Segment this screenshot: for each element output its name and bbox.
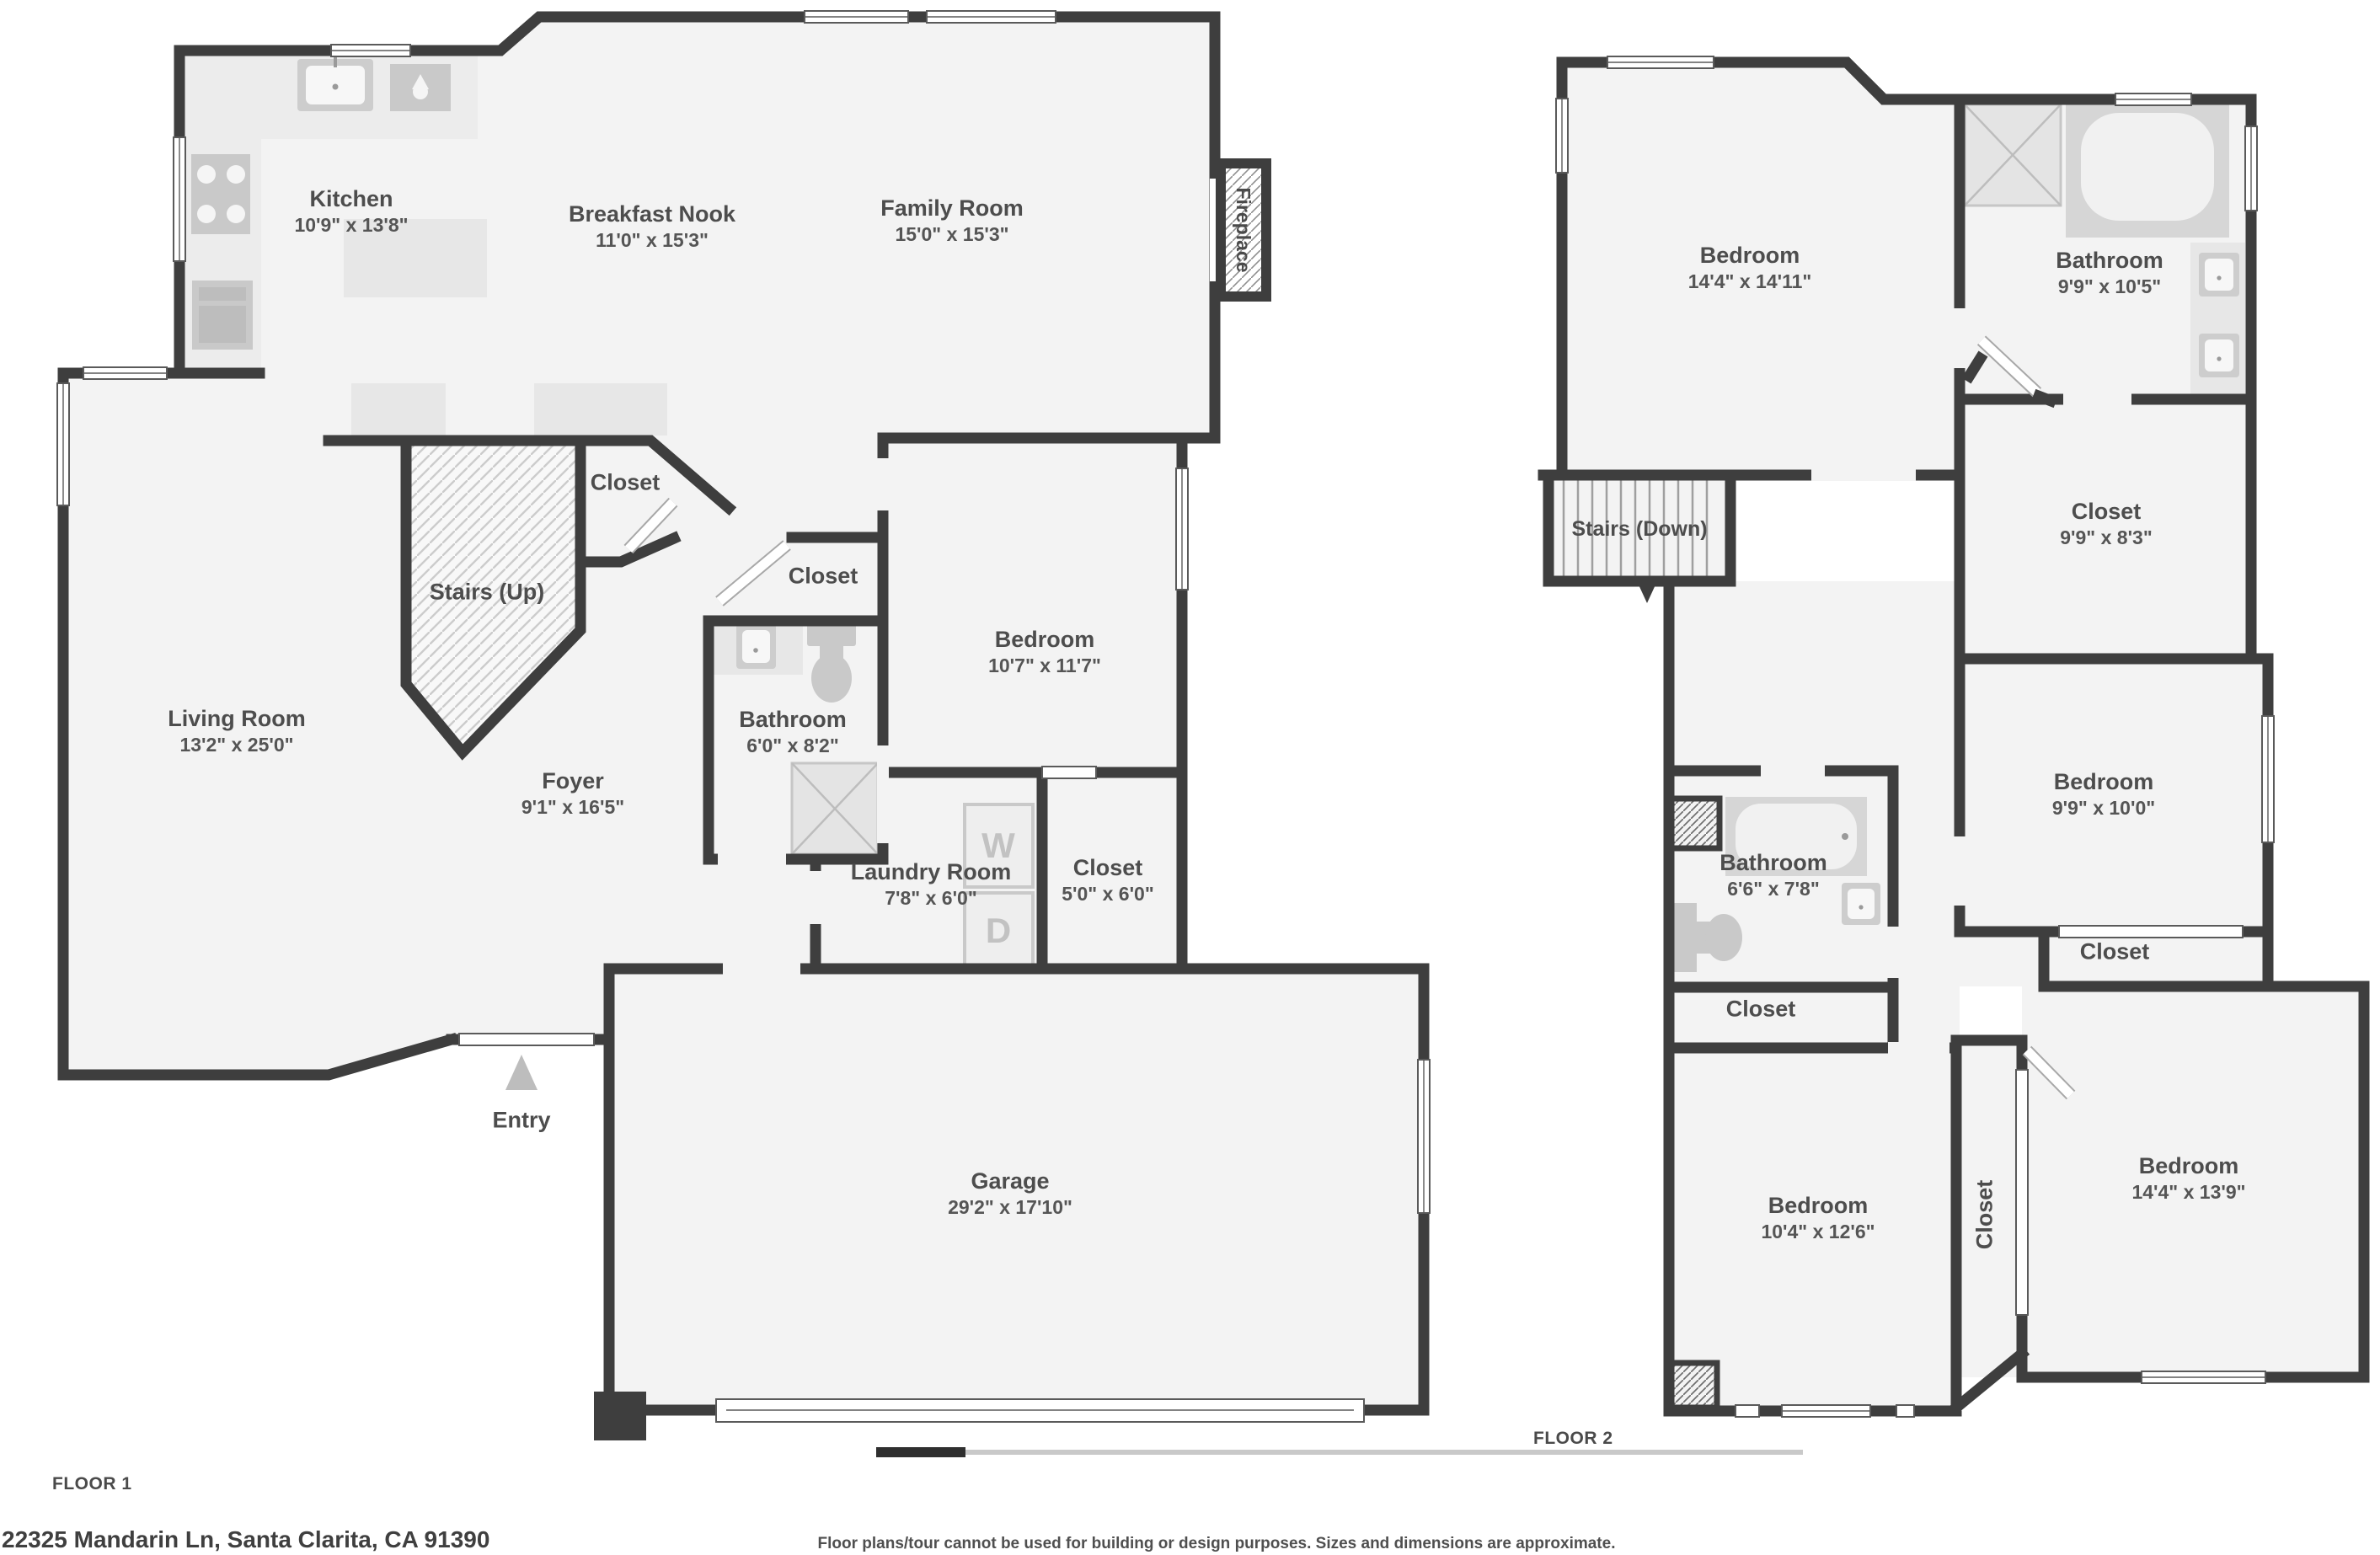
floor-plan-page: W D	[0, 0, 2380, 1555]
room-dims: 9'9" x 10'5"	[2056, 275, 2163, 299]
room-label-closet2: Closet	[1726, 996, 1796, 1023]
room-label-bedroom-mid: Bedroom 9'9" x 10'0"	[2052, 768, 2155, 820]
room-name: Bedroom	[1761, 1192, 1875, 1220]
room-name: Bedroom	[988, 626, 1101, 654]
room-dims: 14'4" x 13'9"	[2131, 1180, 2245, 1205]
room-name: Laundry Room	[851, 858, 1012, 886]
room-label-family-room: Family Room 15'0" x 15'3"	[880, 195, 1024, 247]
room-name: Stairs (Up)	[430, 579, 545, 607]
room-label-living-room: Living Room 13'2" x 25'0"	[168, 705, 306, 757]
room-name: Fireplace	[1232, 188, 1255, 273]
room-name: Garage	[948, 1168, 1072, 1195]
dryer-letter: D	[986, 911, 1011, 950]
disclaimer: Floor plans/tour cannot be used for buil…	[818, 1535, 1616, 1553]
room-name: Family Room	[880, 195, 1024, 222]
room-dims: 6'0" x 8'2"	[739, 734, 847, 758]
room-name: Closet	[1971, 1180, 1999, 1250]
footer-separator	[876, 1447, 1803, 1457]
garage-step	[594, 1392, 646, 1440]
room-name: Bathroom	[1719, 849, 1827, 877]
room-dims: 10'4" x 12'6"	[1761, 1220, 1875, 1244]
room-label-closet-main: Closet 9'9" x 8'3"	[2060, 498, 2153, 550]
toilet-icon	[1671, 903, 1697, 972]
room-name: Closet	[591, 469, 661, 497]
room-label-bedroom-left: Bedroom 10'4" x 12'6"	[1761, 1192, 1875, 1244]
room-label-closet-right: Closet	[2080, 938, 2150, 966]
room-label-bedroom-right: Bedroom 14'4" x 13'9"	[2131, 1152, 2245, 1205]
room-label-breakfast-nook: Breakfast Nook 11'0" x 15'3"	[569, 200, 735, 253]
chimney-icon	[1671, 1363, 1717, 1408]
room-name: Closet	[1062, 854, 1154, 882]
room-label-entry: Entry	[492, 1107, 550, 1135]
room-dims: 9'9" x 10'0"	[2052, 796, 2155, 820]
room-label-closet-vertical: Closet	[1971, 1180, 1999, 1250]
room-dims: 13'2" x 25'0"	[168, 733, 306, 757]
room-dims: 11'0" x 15'3"	[569, 228, 735, 253]
room-name: Closet	[1726, 996, 1796, 1023]
chimney-icon	[1671, 799, 1719, 848]
room-dims: 10'7" x 11'7"	[988, 654, 1101, 678]
room-dims: 14'4" x 14'11"	[1688, 270, 1812, 294]
room-name: Kitchen	[294, 185, 408, 213]
room-label-bath-closet: Closet	[789, 563, 858, 590]
room-dims: 9'1" x 16'5"	[521, 795, 624, 820]
room-name: Bedroom	[2052, 768, 2155, 796]
floor1-tag: FLOOR 1	[52, 1474, 132, 1494]
room-label-laundry: Laundry Room 7'8" x 6'0"	[851, 858, 1012, 911]
room-label-bathroom1: Bathroom 6'0" x 8'2"	[739, 706, 847, 758]
room-label-foyer: Foyer 9'1" x 16'5"	[521, 767, 624, 820]
room-name: Bedroom	[2131, 1152, 2245, 1180]
room-label-bedroom-main: Bedroom 14'4" x 14'11"	[1688, 242, 1812, 294]
room-name: Stairs (Down)	[1571, 516, 1707, 542]
room-label-bathroom-main: Bathroom 9'9" x 10'5"	[2056, 247, 2163, 299]
room-dims: 6'6" x 7'8"	[1719, 877, 1827, 901]
room-label-closet5: Closet 5'0" x 6'0"	[1062, 854, 1154, 906]
entry-arrow-icon	[505, 1055, 538, 1090]
room-label-stairs-down: Stairs (Down)	[1571, 516, 1707, 542]
room-name: Closet	[789, 563, 858, 590]
room-label-stairs-up: Stairs (Up)	[430, 579, 545, 607]
room-name: Bedroom	[1688, 242, 1812, 270]
stove-icon	[191, 154, 250, 234]
room-dims: 7'8" x 6'0"	[851, 886, 1012, 911]
room-name: Breakfast Nook	[569, 200, 735, 228]
room-name: Entry	[492, 1107, 550, 1135]
room-name: Bathroom	[739, 706, 847, 734]
room-dims: 15'0" x 15'3"	[880, 222, 1024, 247]
room-dims: 9'9" x 8'3"	[2060, 526, 2153, 550]
room-dims: 10'9" x 13'8"	[294, 213, 408, 238]
room-name: Bathroom	[2056, 247, 2163, 275]
room-label-kitchen: Kitchen 10'9" x 13'8"	[294, 185, 408, 238]
room-label-garage: Garage 29'2" x 17'10"	[948, 1168, 1072, 1220]
room-label-stairs-closet: Closet	[591, 469, 661, 497]
room-label-fireplace: Fireplace	[1232, 188, 1255, 273]
room-name: Closet	[2060, 498, 2153, 526]
room-name: Closet	[2080, 938, 2150, 966]
room-label-bathroom2: Bathroom 6'6" x 7'8"	[1719, 849, 1827, 901]
toilet-icon	[807, 623, 856, 646]
floor2-tag: FLOOR 2	[1533, 1429, 1613, 1449]
room-dims: 5'0" x 6'0"	[1062, 882, 1154, 906]
room-dims: 29'2" x 17'10"	[948, 1195, 1072, 1220]
garage-door	[716, 1399, 1364, 1422]
room-label-bedroom1: Bedroom 10'7" x 11'7"	[988, 626, 1101, 678]
address: 22325 Mandarin Ln, Santa Clarita, CA 913…	[2, 1526, 489, 1553]
room-name: Living Room	[168, 705, 306, 733]
room-name: Foyer	[521, 767, 624, 795]
